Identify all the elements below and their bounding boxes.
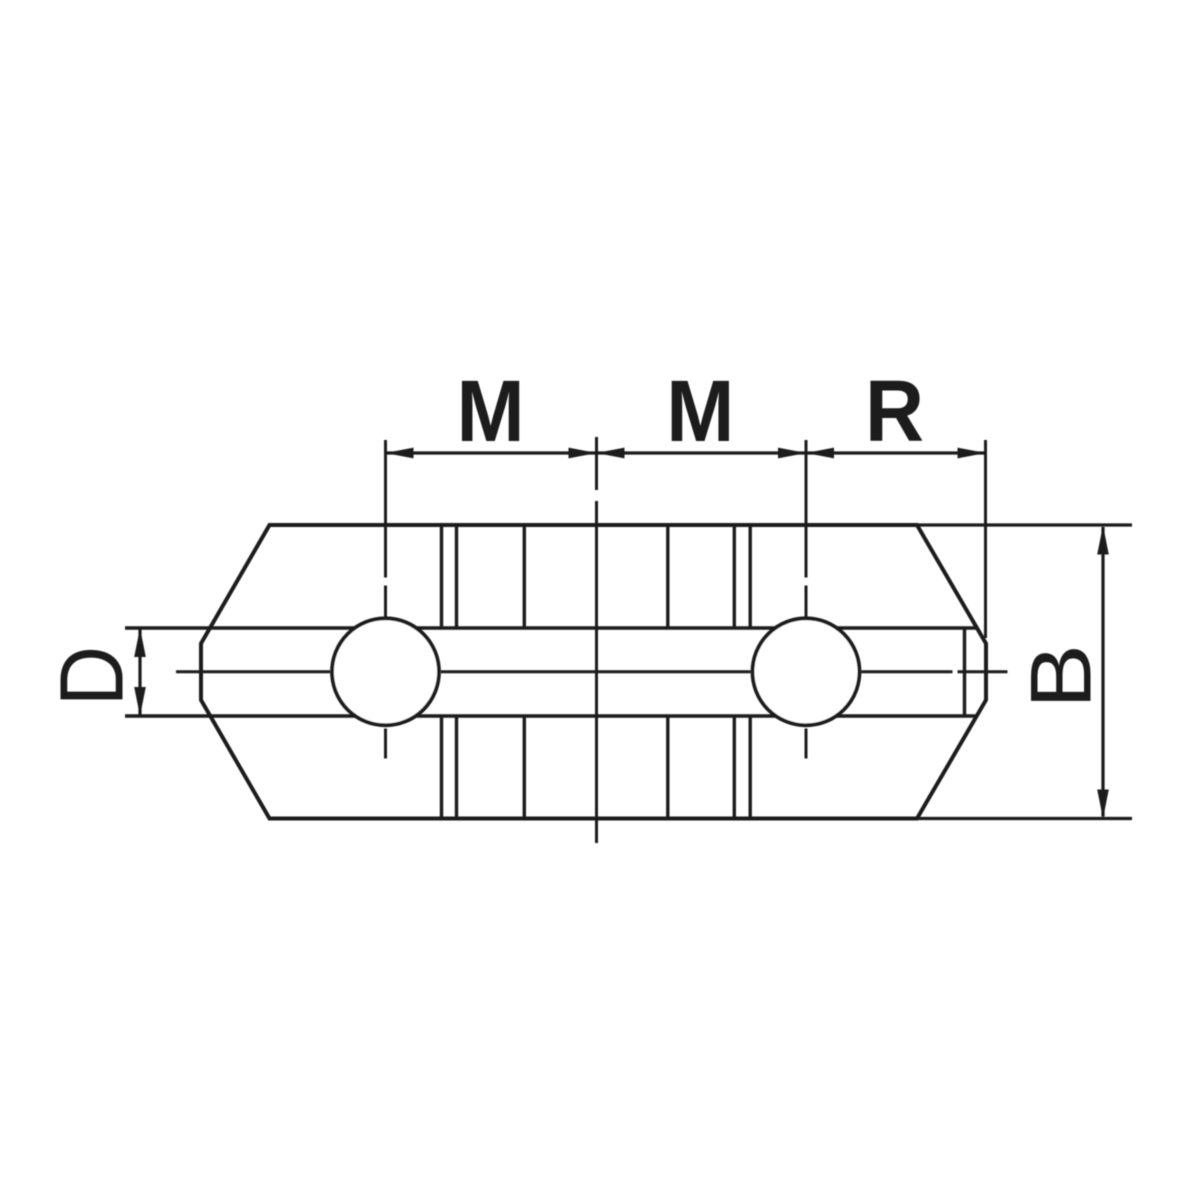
svg-text:M: M xyxy=(666,363,734,460)
svg-text:B: B xyxy=(1014,644,1110,709)
svg-text:M: M xyxy=(456,363,524,460)
svg-text:R: R xyxy=(865,363,924,460)
svg-text:D: D xyxy=(42,646,142,706)
